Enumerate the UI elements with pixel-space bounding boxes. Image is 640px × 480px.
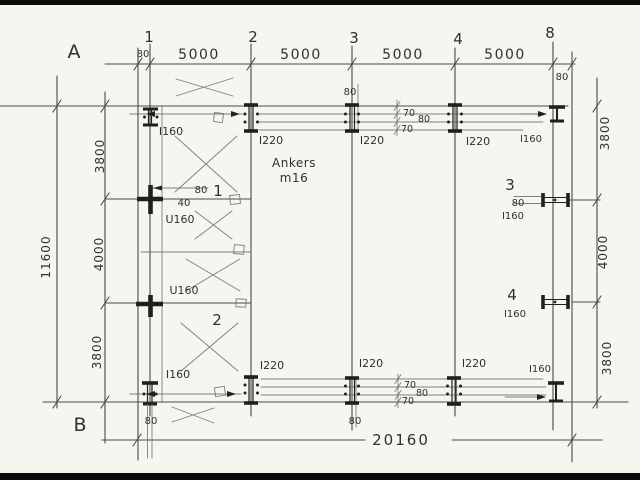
girt-label-upper: U160 (165, 213, 194, 226)
structural-plan-drawing: A B 1 2 3 4 8 80 5000 5000 5000 5000 80 … (0, 0, 640, 480)
profile-label-bottom-grid2: I220 (260, 359, 284, 372)
profile-label-top-grid1: I160 (159, 125, 183, 138)
beam-callout-bottom-1: 70 (404, 380, 416, 391)
grid-col-label-2: 2 (248, 28, 258, 46)
dim-left-seg-1: 3800 (93, 139, 107, 174)
detail-dim-80: 80 (195, 185, 208, 196)
dim-top-right-offset: 80 (556, 72, 569, 83)
beam-callout-bottom-2: 80 (416, 388, 428, 399)
profile-label-bottom-grid1: I160 (166, 368, 190, 381)
marker3-dim-80: 80 (512, 198, 525, 209)
dim-top-bay-2: 5000 (280, 47, 322, 63)
row-b-label: B (73, 414, 86, 436)
panel-marker-4: 4 (507, 286, 517, 304)
panel-marker-2: 2 (212, 311, 222, 329)
anchors-note-line1: Ankers (272, 156, 316, 170)
profile-label-top-grid4: I220 (466, 135, 490, 148)
dim-right-seg-3: 3800 (600, 341, 614, 376)
profile-label-bottom-right: I160 (529, 364, 551, 375)
marker3-profile: I160 (502, 211, 524, 222)
beam-callout-top-3: 70 (401, 124, 413, 135)
dim-left-seg-2: 4000 (92, 237, 106, 272)
detail-dim-40: 40 (178, 198, 191, 209)
dim-bottom-grid3-offset: 80 (349, 416, 362, 427)
grid-col-label-1: 1 (144, 28, 154, 46)
grid-col-label-8: 8 (545, 24, 555, 42)
grid-col-label-3: 3 (349, 29, 359, 47)
dim-left-total: 11600 (39, 235, 53, 278)
panel-marker-1: 1 (213, 182, 223, 200)
dim-bottom-grid1-offset: 80 (145, 416, 158, 427)
beam-callout-top-1: 70 (403, 108, 415, 119)
scanned-drawing-page: A B 1 2 3 4 8 80 5000 5000 5000 5000 80 … (0, 0, 640, 480)
dim-top-bay-3: 5000 (382, 47, 424, 63)
row-a-label: A (68, 41, 81, 63)
beam-callout-bottom-3: 70 (402, 396, 414, 407)
dim-grid3-top-offset: 80 (344, 87, 357, 98)
anchors-note-line2: m16 (280, 171, 308, 185)
dim-bottom-total: 20160 (372, 431, 430, 449)
dim-top-bay-1: 5000 (178, 47, 220, 63)
profile-label-top-grid3: I220 (360, 134, 384, 147)
panel-marker-3: 3 (505, 176, 515, 194)
dim-left-seg-3: 3800 (90, 335, 104, 370)
profile-label-bottom-grid4: I220 (462, 357, 486, 370)
marker4-profile: I160 (504, 309, 526, 320)
beam-callout-top-2: 80 (418, 114, 430, 125)
dim-top-bay-4: 5000 (484, 47, 526, 63)
grid-col-label-4: 4 (453, 30, 463, 48)
profile-label-top-grid2: I220 (259, 134, 283, 147)
girt-label-lower: U160 (169, 284, 198, 297)
dim-right-seg-2: 4000 (596, 235, 610, 270)
dim-right-seg-1: 3800 (598, 116, 612, 151)
dim-top-left-offset: 80 (137, 49, 150, 60)
profile-label-bottom-grid3: I220 (359, 357, 383, 370)
profile-label-top-right: I160 (520, 134, 542, 145)
